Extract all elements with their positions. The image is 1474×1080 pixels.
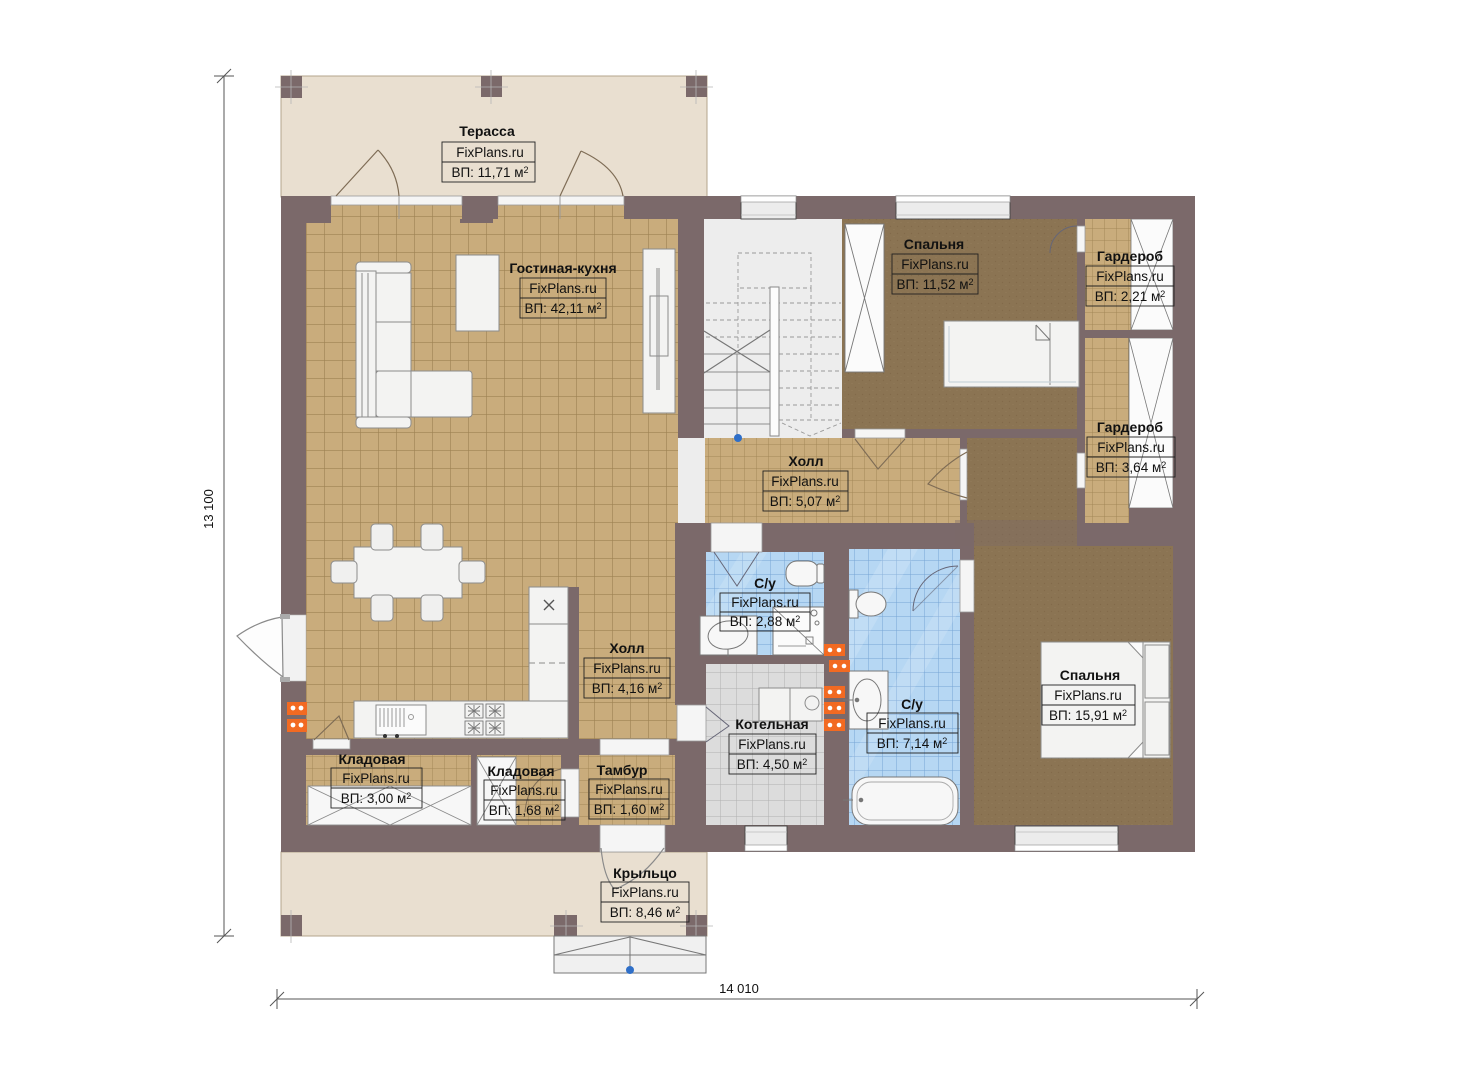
svg-text:Котельная: Котельная bbox=[735, 716, 808, 732]
svg-text:FixPlans.ru: FixPlans.ru bbox=[731, 595, 799, 610]
svg-text:Гостиная-кухня: Гостиная-кухня bbox=[509, 260, 616, 276]
svg-text:Кладовая: Кладовая bbox=[487, 763, 554, 779]
svg-text:Тамбур: Тамбур bbox=[597, 762, 648, 778]
svg-text:Холл: Холл bbox=[609, 640, 644, 656]
svg-text:FixPlans.ru: FixPlans.ru bbox=[878, 716, 946, 731]
svg-text:FixPlans.ru: FixPlans.ru bbox=[529, 281, 597, 296]
svg-text:ВП: 5,07 м2: ВП: 5,07 м2 bbox=[770, 494, 841, 509]
svg-text:ВП: 4,16 м2: ВП: 4,16 м2 bbox=[592, 681, 663, 696]
svg-text:Терасса: Терасса bbox=[459, 123, 515, 139]
svg-text:Кладовая: Кладовая bbox=[338, 751, 405, 767]
svg-text:FixPlans.ru: FixPlans.ru bbox=[611, 885, 679, 900]
svg-text:FixPlans.ru: FixPlans.ru bbox=[738, 737, 806, 752]
svg-text:FixPlans.ru: FixPlans.ru bbox=[595, 782, 663, 797]
svg-text:ВП: 3,64 м2: ВП: 3,64 м2 bbox=[1096, 460, 1167, 475]
svg-text:Спальня: Спальня bbox=[1060, 667, 1120, 683]
svg-text:FixPlans.ru: FixPlans.ru bbox=[771, 474, 839, 489]
svg-text:Крыльцо: Крыльцо bbox=[613, 865, 677, 881]
svg-text:ВП: 2,88 м2: ВП: 2,88 м2 bbox=[730, 614, 801, 629]
svg-text:Спальня: Спальня bbox=[904, 236, 964, 252]
svg-text:ВП: 42,11 м2: ВП: 42,11 м2 bbox=[524, 301, 601, 316]
svg-text:С/у: С/у bbox=[901, 696, 923, 712]
svg-text:FixPlans.ru: FixPlans.ru bbox=[1054, 688, 1122, 703]
svg-text:ВП: 8,46 м2: ВП: 8,46 м2 bbox=[610, 905, 681, 920]
svg-text:FixPlans.ru: FixPlans.ru bbox=[593, 661, 661, 676]
svg-text:ВП: 15,91 м2: ВП: 15,91 м2 bbox=[1049, 708, 1127, 723]
svg-text:С/у: С/у bbox=[754, 575, 776, 591]
svg-text:ВП: 1,68 м2: ВП: 1,68 м2 bbox=[489, 803, 560, 818]
svg-text:ВП: 4,50 м2: ВП: 4,50 м2 bbox=[737, 757, 808, 772]
svg-text:FixPlans.ru: FixPlans.ru bbox=[456, 145, 524, 160]
svg-text:ВП: 3,00 м2: ВП: 3,00 м2 bbox=[341, 791, 412, 806]
svg-text:Гардероб: Гардероб bbox=[1097, 248, 1164, 264]
svg-text:FixPlans.ru: FixPlans.ru bbox=[1096, 269, 1164, 284]
svg-text:ВП: 11,52 м2: ВП: 11,52 м2 bbox=[896, 277, 973, 292]
svg-text:Холл: Холл bbox=[788, 453, 823, 469]
svg-text:ВП: 11,71 м2: ВП: 11,71 м2 bbox=[451, 165, 528, 180]
svg-text:ВП: 7,14 м2: ВП: 7,14 м2 bbox=[877, 736, 948, 751]
svg-text:13 100: 13 100 bbox=[201, 489, 216, 529]
svg-text:ВП: 2,21 м2: ВП: 2,21 м2 bbox=[1095, 289, 1166, 304]
svg-text:Гардероб: Гардероб bbox=[1097, 419, 1164, 435]
svg-text:FixPlans.ru: FixPlans.ru bbox=[490, 783, 558, 798]
svg-text:FixPlans.ru: FixPlans.ru bbox=[901, 257, 969, 272]
svg-text:FixPlans.ru: FixPlans.ru bbox=[1097, 440, 1165, 455]
svg-text:14 010: 14 010 bbox=[719, 981, 759, 996]
svg-text:FixPlans.ru: FixPlans.ru bbox=[342, 771, 410, 786]
svg-text:ВП: 1,60 м2: ВП: 1,60 м2 bbox=[594, 802, 665, 817]
